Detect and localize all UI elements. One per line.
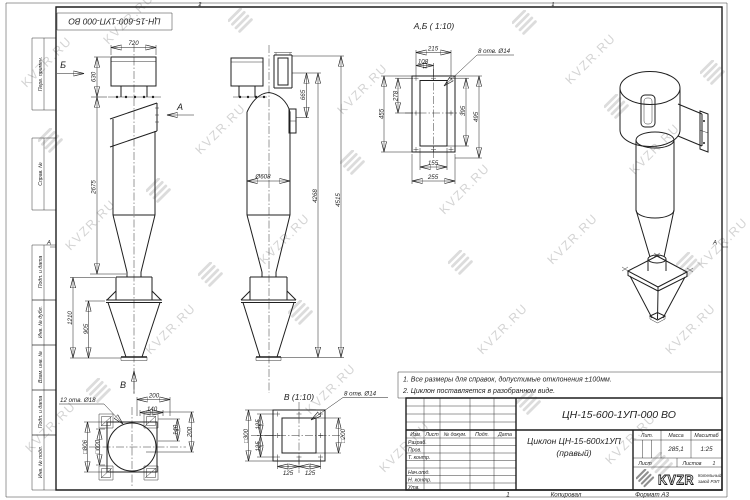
margin-label: Взам. инв. № <box>38 351 44 383</box>
part-name-line2: (правый) <box>556 448 591 458</box>
dim-125: 125 <box>283 470 294 477</box>
col-podp: Подп. <box>475 432 489 438</box>
dim-2675: 2675 <box>91 180 98 195</box>
dim-720: 720 <box>128 40 139 47</box>
dim-125: 125 <box>255 419 262 430</box>
dim-905: 905 <box>83 323 90 334</box>
zone-number: 2 <box>198 2 202 8</box>
dim-630: 630 <box>91 71 98 82</box>
kvzr-logo-sub1: Котельный <box>698 473 722 478</box>
margin-label: Справ. № <box>38 162 44 186</box>
col-doc: № докум. <box>444 432 467 438</box>
col-izm: Изм <box>410 432 420 438</box>
col-data: Дата <box>497 432 512 438</box>
scale-label: Масштаб <box>694 433 719 439</box>
dim-d608: Ø608 <box>254 174 271 181</box>
front-view: 720 630 2675 1210 905 Б А В <box>57 40 194 394</box>
holes-note-8xd14: 8 отв. Ø14 <box>344 391 377 398</box>
dim-s806: □806 <box>82 439 89 454</box>
section-ab-title: А,Б ( 1:10) <box>413 21 455 31</box>
sheet-footer: 1 Копировал Формат А3 <box>506 492 669 499</box>
dim-200r: 200 <box>187 426 194 438</box>
col-list: Лист <box>424 432 439 438</box>
view-v-title: В (1:10) <box>284 392 314 402</box>
dim-155: 155 <box>428 160 439 167</box>
row-prov: Пров. <box>408 448 422 454</box>
title-block: Изм Лист № докум. Подп. Дата Разраб. Про… <box>406 398 722 491</box>
dim-395: 395 <box>460 105 467 116</box>
mass-label: Масса <box>668 433 683 439</box>
dim-125: 125 <box>255 441 262 452</box>
scale-value: 1:25 <box>700 446 713 453</box>
margin-label: Инв. № дубл. <box>38 306 44 338</box>
zone-marker: А <box>712 240 717 247</box>
row-nachotd: Нач.отд. <box>408 470 430 476</box>
dim-200t: 200 <box>148 393 160 400</box>
kvzr-logo: KVZR Котельный завод РЭП <box>635 468 722 487</box>
dim-665: 665 <box>300 89 307 100</box>
kvzr-logo-sub2: завод РЭП <box>697 479 720 484</box>
dim-4268: 4268 <box>312 189 319 203</box>
dim-215: 215 <box>427 46 439 53</box>
dim-s200: □200 <box>340 428 347 443</box>
zone-number: 1 <box>552 2 555 8</box>
footer-format: Формат А3 <box>635 492 669 499</box>
view-arrow-label-b: Б <box>60 60 66 70</box>
note-line-1: 1. Все размеры для справок, допустимые о… <box>403 376 612 384</box>
stamp-text: ЦН-15-600-1УП-000 ВО <box>68 17 161 27</box>
dim-255: 255 <box>427 174 439 181</box>
dim-108: 108 <box>418 59 429 66</box>
view-arrow-label-a: А <box>176 102 183 112</box>
dim-495: 495 <box>473 111 480 122</box>
holes-note-12xd18: 12 отв. Ø18 <box>60 397 96 404</box>
notes: 1. Все размеры для справок, допустимые о… <box>398 372 722 398</box>
row-tkontr: Т. контр. <box>408 455 430 461</box>
dim-125: 125 <box>305 470 316 477</box>
dim-s300: □300 <box>243 428 250 443</box>
dim-4515: 4515 <box>335 193 342 207</box>
margin-label: Перв. примен. <box>38 57 44 91</box>
row-utv: Утв. <box>408 485 420 491</box>
drawing-sheet: KVZR.RU KVZR.RU KVZR.RU KVZR.RU KVZR.RU … <box>0 0 750 500</box>
kvzr-logo-text: KVZR <box>658 472 694 488</box>
margin-label: Подп. и дата <box>38 396 44 429</box>
margin-label: Подп. и дата <box>38 256 44 289</box>
dim-455: 455 <box>379 108 386 119</box>
dim-s600: □600 <box>95 439 102 454</box>
kvzr-logo-icon <box>635 468 654 487</box>
doc-number-stamp: ЦН-15-600-1УП-000 ВО <box>57 13 172 30</box>
part-name-line1: Циклон ЦН-15-600х1УП <box>527 436 622 446</box>
dim-140r: 140 <box>173 424 180 435</box>
margin-columns: Перв. примен. Справ. № Подп. и дата Инв.… <box>32 38 56 490</box>
view-v-detail: В (1:10) □300 125 125 □200 125 125 8 отв… <box>243 391 388 478</box>
note-line-2: 2. Циклон поставляется в разобранном вид… <box>402 387 555 395</box>
doc-number: ЦН-15-600-1УП-000 ВО <box>562 409 676 421</box>
margin-label: Инв. № подл. <box>38 446 44 478</box>
row-nkontr: Н. контр. <box>408 478 431 484</box>
bottom-flange-detail: □806 □600 200 140 140 200 12 отв. Ø18 <box>59 393 194 488</box>
dim-278: 278 <box>393 90 400 102</box>
footer-copied: Копировал <box>551 492 582 499</box>
sheets-value: 1 <box>713 461 716 467</box>
view-arrow-label-v: В <box>120 380 126 390</box>
zone-marker: А <box>46 240 51 247</box>
drawing-frame: 2 1 А А <box>6 2 728 497</box>
side-view: Ø608 665 4268 4515 <box>231 45 344 393</box>
lit-label: Лит. <box>640 433 653 439</box>
section-ab-view: А,Б ( 1:10) 215 108 278 455 395 495 155 <box>379 21 515 184</box>
sheets-label: Листов <box>682 461 702 467</box>
holes-note-8xd14: 8 отв. Ø14 <box>478 48 511 55</box>
footer-num: 1 <box>506 492 509 499</box>
dim-1210: 1210 <box>67 311 74 325</box>
row-razrab: Разраб. <box>408 440 427 446</box>
mass-value: 285,1 <box>667 446 683 453</box>
sheet-label: Лист <box>637 461 652 467</box>
iso-3d-view <box>620 72 708 324</box>
